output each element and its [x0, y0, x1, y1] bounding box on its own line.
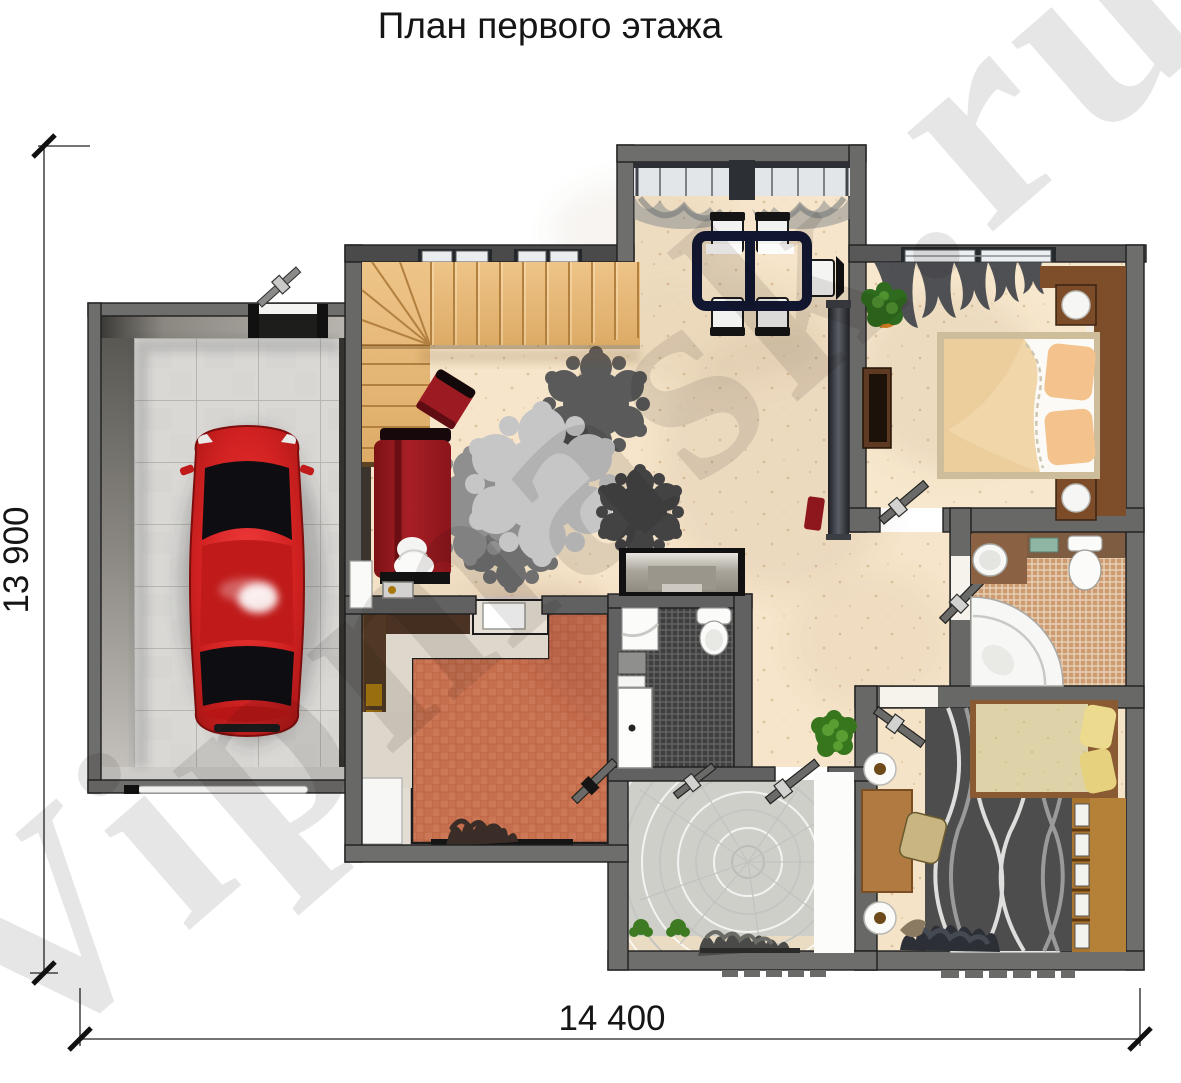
- svg-text:14 400: 14 400: [558, 999, 665, 1038]
- svg-text:13 900: 13 900: [0, 506, 36, 613]
- svg-text:План первого этажа: План первого этажа: [378, 5, 723, 46]
